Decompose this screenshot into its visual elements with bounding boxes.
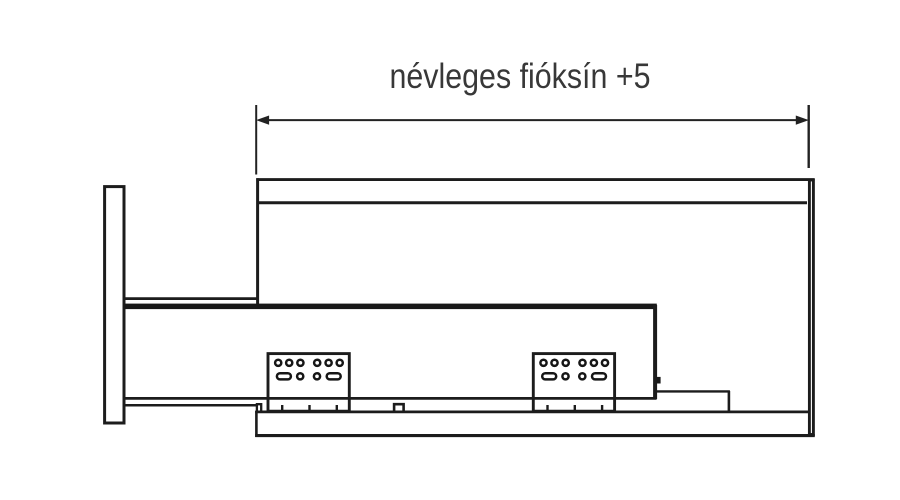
svg-text:névleges fióksín +5: névleges fióksín +5 [390, 57, 651, 96]
